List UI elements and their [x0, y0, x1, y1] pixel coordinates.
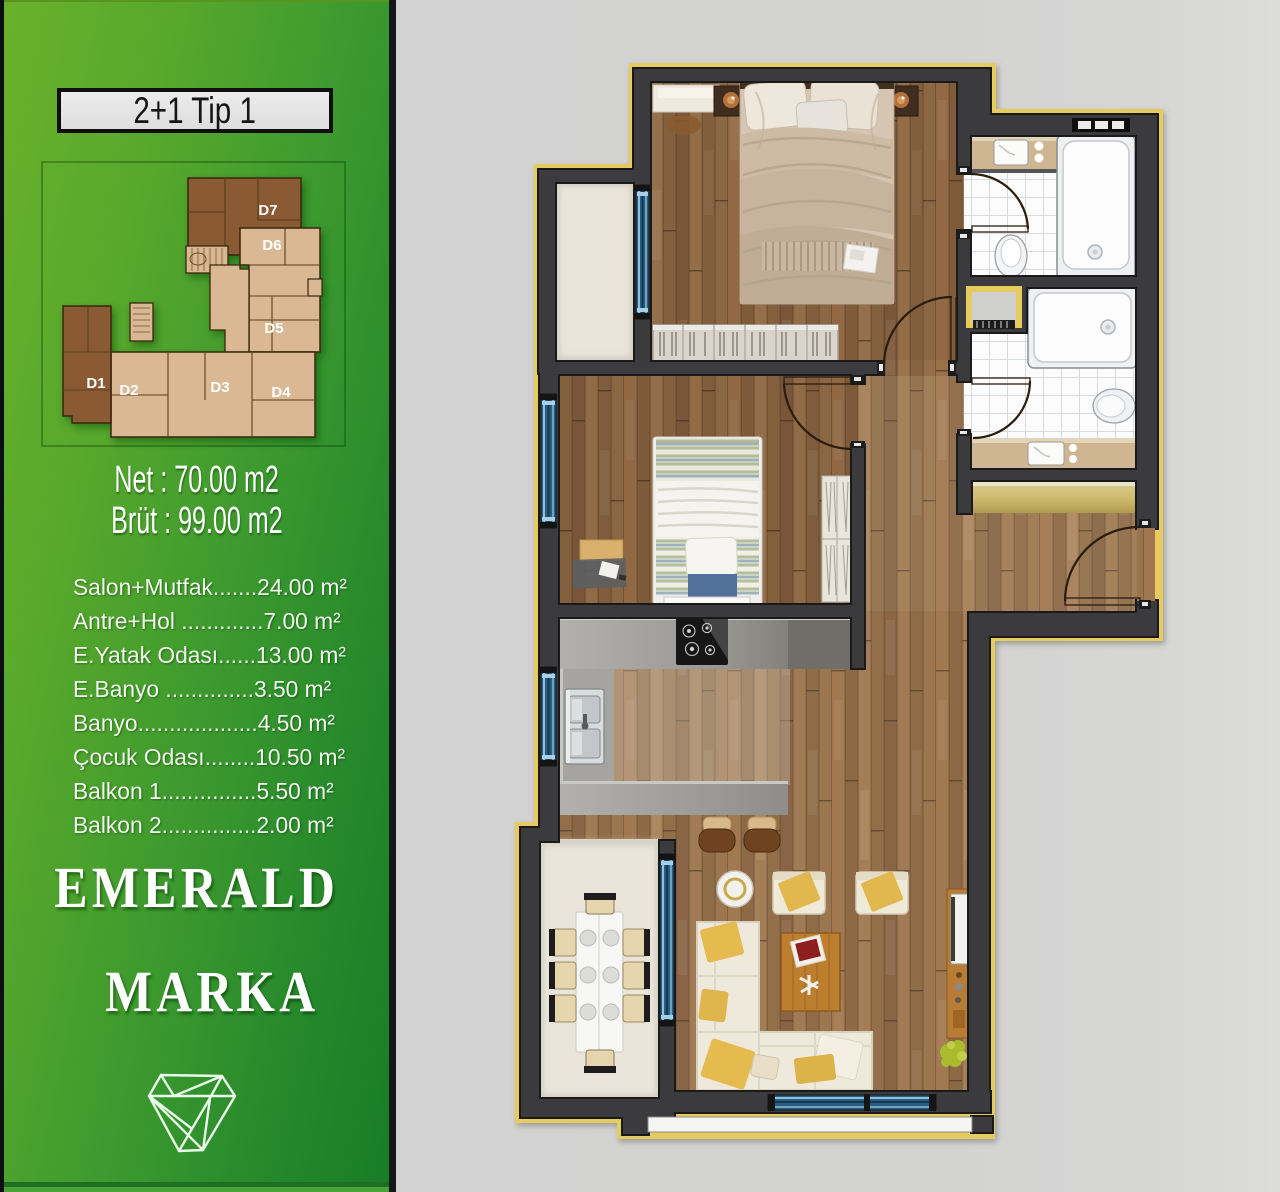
- svg-text:D3: D3: [210, 379, 229, 396]
- svg-text:D7: D7: [258, 202, 277, 219]
- svg-text:D6: D6: [262, 237, 281, 254]
- svg-text:D1: D1: [86, 375, 105, 392]
- svg-text:D4: D4: [271, 384, 291, 401]
- svg-text:D2: D2: [119, 382, 138, 399]
- svg-text:D5: D5: [264, 320, 283, 337]
